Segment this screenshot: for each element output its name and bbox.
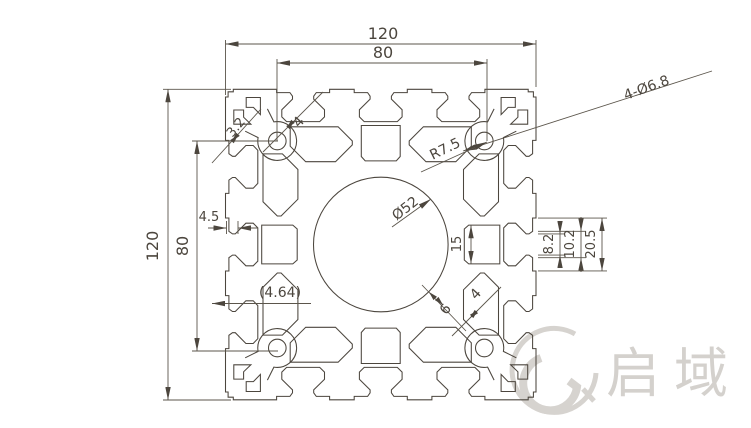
dim-hole-pitch-left: 80	[173, 236, 192, 256]
brand-name-text: 启域	[606, 342, 742, 405]
dim-slot-throat: 10.2	[563, 230, 578, 259]
dim-web-bottom: 4	[467, 286, 485, 303]
dim-overall-height: 120	[143, 231, 162, 262]
watermark: 启域	[512, 328, 742, 412]
profile-cross-section	[226, 89, 537, 400]
dim-cavity-height: 15	[450, 236, 465, 253]
dim-slot-opening: 8.2	[542, 234, 557, 255]
leader-corner-holes	[463, 71, 712, 151]
ext-lines-left-80	[192, 141, 278, 351]
dim-slot-mouth: 20.5	[584, 230, 599, 259]
dim-lip-depth: 4.5	[199, 210, 220, 225]
ext-lines-top-80	[277, 59, 487, 141]
dimension-texts: 120 80 120 80 3.2 4 4-Ø6.8 R7.5 Ø52 15 4…	[143, 24, 672, 318]
cad-drawing-canvas: 启域	[0, 0, 751, 428]
dim-hole-pitch-top: 80	[373, 43, 393, 62]
dim-center-bore: Ø52	[389, 194, 422, 224]
dim-bore-wall: 6	[437, 301, 455, 318]
technical-drawing: 启域	[0, 0, 751, 428]
ext-ticks-4-5	[227, 221, 239, 234]
dim-ref-wall: (4.64)	[259, 285, 301, 301]
dim-corner-holes: 4-Ø6.8	[622, 73, 672, 104]
dim-overall-width: 120	[368, 24, 399, 43]
